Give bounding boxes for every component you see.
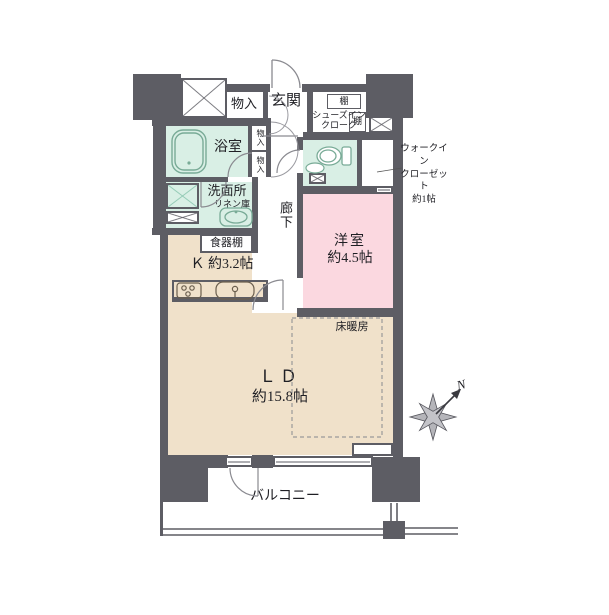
living-dining-label: ＬＤ bbox=[245, 367, 315, 387]
shoes-cloak-label: シューズイン クローク bbox=[310, 110, 368, 131]
pillar-top-left bbox=[133, 74, 181, 120]
shoes-cloak-line2: クローク bbox=[321, 120, 357, 130]
wic-line3: 約1帖 bbox=[412, 195, 436, 205]
balcony-label: バルコニー bbox=[245, 489, 325, 505]
wall bbox=[160, 177, 228, 182]
pillar-top-right bbox=[366, 74, 413, 118]
wall bbox=[252, 455, 273, 468]
wic-opening bbox=[375, 186, 393, 194]
pillar-bottom-right bbox=[372, 457, 420, 502]
wall bbox=[303, 186, 360, 194]
balcony-drain-box bbox=[383, 521, 405, 539]
corridor-closet-door-arcs bbox=[271, 122, 298, 177]
corridor-label: 廊下 bbox=[276, 196, 292, 234]
compass-icon: N bbox=[406, 376, 468, 444]
shaft-strip-washroom bbox=[166, 211, 199, 224]
shoes-cloak-line1: シューズイン bbox=[312, 110, 366, 120]
wall bbox=[225, 84, 270, 92]
balcony-railing bbox=[160, 503, 458, 535]
compass-north-label: N bbox=[454, 376, 468, 393]
washroom-label: 洗面所 bbox=[199, 184, 255, 199]
wall bbox=[360, 186, 375, 194]
kitchen-label: Ｋ 約3.2帖 bbox=[176, 257, 268, 273]
closet-cell-divider bbox=[252, 150, 266, 152]
pipe-space-hatch bbox=[166, 183, 199, 209]
window-glass-line bbox=[228, 461, 250, 462]
western-room-size: 約4.5帖 bbox=[315, 251, 385, 267]
counter-end bbox=[263, 284, 268, 302]
balcony-window-right bbox=[273, 456, 373, 467]
wic-line1: ウォークイン bbox=[400, 144, 448, 167]
ld-corner-shelf bbox=[352, 443, 393, 456]
wall bbox=[297, 137, 303, 150]
shaft-box-toilet bbox=[309, 173, 326, 184]
entrance-door-arc bbox=[272, 60, 300, 88]
window-glass-line bbox=[378, 190, 390, 191]
shelf-label: 棚 bbox=[328, 96, 360, 106]
storage-top-label: 物入 bbox=[225, 97, 263, 112]
closet-cell-lower-label: 物入 bbox=[253, 154, 265, 176]
wall bbox=[153, 118, 166, 228]
wic-line2: クローゼット bbox=[400, 170, 448, 193]
wall bbox=[266, 118, 271, 177]
closet-cell-upper-label: 物入 bbox=[253, 127, 265, 149]
wall bbox=[195, 455, 225, 468]
window-glass-line bbox=[276, 461, 370, 462]
counter-edge bbox=[172, 297, 268, 302]
balcony-window-left bbox=[225, 456, 253, 467]
wall bbox=[357, 140, 362, 186]
wic-label: ウォークイン クローゼット 約1帖 bbox=[396, 143, 452, 207]
wall bbox=[297, 308, 395, 317]
shelf-box-top: 棚 bbox=[327, 94, 361, 109]
wall bbox=[297, 173, 303, 278]
pipe-shaft-box bbox=[181, 78, 227, 118]
bathroom-label: 浴室 bbox=[206, 140, 250, 156]
living-dining-size: 約15.8帖 bbox=[235, 389, 325, 406]
wall bbox=[303, 132, 403, 140]
floorplan-canvas: 棚 棚 食器棚 物入 玄関 シューズイン クローク 浴室 物入 物入 洗面所 リ… bbox=[0, 0, 609, 615]
cupboard: 食器棚 bbox=[200, 234, 253, 253]
floor-heating-label: 床暖房 bbox=[326, 321, 378, 334]
north-arrowhead bbox=[451, 389, 461, 399]
western-room-label: 洋室 bbox=[319, 234, 381, 250]
cupboard-label: 食器棚 bbox=[202, 237, 251, 250]
entrance-label: 玄関 bbox=[266, 93, 306, 110]
toilet-door-arc bbox=[277, 150, 300, 173]
wall bbox=[160, 228, 168, 457]
shaft-box-small-right bbox=[369, 116, 394, 133]
wall bbox=[302, 84, 368, 92]
linen-label: リネン庫 bbox=[206, 199, 258, 209]
kitchen-counter bbox=[172, 280, 268, 302]
balcony-side-wall bbox=[160, 468, 163, 536]
